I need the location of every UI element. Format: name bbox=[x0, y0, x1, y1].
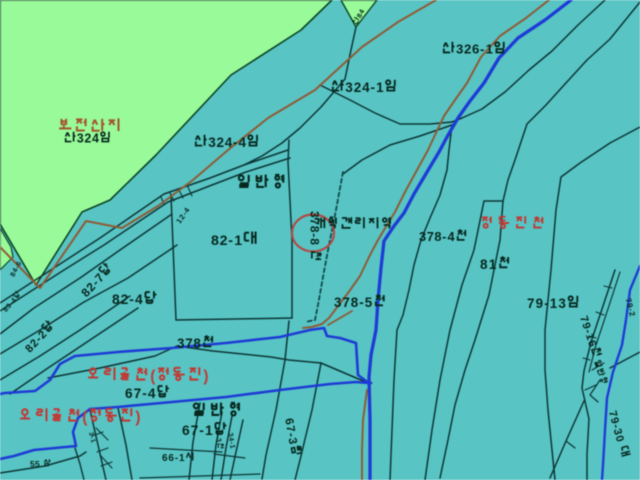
svg-text:1: 1 bbox=[179, 453, 185, 464]
svg-text:8: 8 bbox=[351, 295, 359, 310]
svg-text:-: - bbox=[544, 296, 548, 311]
svg-text:-: - bbox=[480, 42, 484, 57]
svg-text:1: 1 bbox=[205, 423, 213, 438]
svg-text:8: 8 bbox=[112, 292, 120, 307]
svg-text:1: 1 bbox=[550, 296, 558, 311]
svg-text:6: 6 bbox=[168, 453, 174, 464]
svg-text:6: 6 bbox=[472, 42, 479, 57]
svg-text:1: 1 bbox=[489, 257, 497, 272]
svg-text:-: - bbox=[228, 233, 233, 249]
svg-text:2: 2 bbox=[217, 135, 225, 150]
svg-text:(: ( bbox=[150, 368, 156, 385]
svg-text:3: 3 bbox=[308, 211, 322, 218]
svg-text:8: 8 bbox=[434, 229, 441, 244]
svg-text:4: 4 bbox=[448, 229, 456, 244]
svg-text:-: - bbox=[233, 135, 238, 150]
svg-text:1: 1 bbox=[376, 80, 384, 95]
svg-text:-: - bbox=[199, 423, 204, 438]
svg-text:7: 7 bbox=[527, 296, 534, 311]
svg-text:3: 3 bbox=[77, 132, 84, 146]
svg-text:2: 2 bbox=[464, 42, 471, 57]
svg-text:9: 9 bbox=[536, 296, 543, 311]
svg-text:8: 8 bbox=[480, 257, 488, 272]
svg-text:7: 7 bbox=[134, 386, 142, 401]
svg-text:4: 4 bbox=[135, 292, 143, 307]
svg-text:4: 4 bbox=[148, 386, 156, 401]
svg-text:-: - bbox=[129, 292, 134, 307]
svg-text:7: 7 bbox=[427, 229, 434, 244]
svg-text:2: 2 bbox=[121, 292, 129, 307]
svg-text:1: 1 bbox=[486, 42, 493, 57]
svg-text:(: ( bbox=[82, 409, 88, 426]
svg-text:7: 7 bbox=[308, 218, 322, 225]
svg-text:4: 4 bbox=[92, 132, 99, 146]
svg-text:5: 5 bbox=[35, 459, 40, 469]
svg-text:-: - bbox=[308, 233, 322, 237]
svg-text:5: 5 bbox=[365, 295, 373, 310]
svg-text:4: 4 bbox=[239, 135, 247, 150]
svg-text:4: 4 bbox=[362, 80, 370, 95]
svg-text:3: 3 bbox=[456, 42, 463, 57]
svg-text:7: 7 bbox=[191, 423, 199, 438]
svg-text:3: 3 bbox=[345, 80, 353, 95]
svg-text:6: 6 bbox=[182, 423, 190, 438]
svg-text:): ) bbox=[203, 368, 208, 385]
svg-text:8: 8 bbox=[193, 336, 201, 351]
svg-text:4: 4 bbox=[225, 135, 233, 150]
svg-text:3: 3 bbox=[208, 135, 216, 150]
svg-text:7: 7 bbox=[185, 336, 192, 351]
svg-text:6: 6 bbox=[162, 453, 168, 464]
svg-text:1: 1 bbox=[234, 233, 242, 249]
svg-text:8: 8 bbox=[308, 226, 322, 233]
svg-text:-: - bbox=[142, 386, 147, 401]
svg-text:2: 2 bbox=[84, 132, 91, 146]
svg-text:-: - bbox=[442, 229, 446, 244]
svg-text:-: - bbox=[359, 295, 363, 310]
svg-text:3: 3 bbox=[419, 229, 426, 244]
svg-text:3: 3 bbox=[177, 336, 184, 351]
svg-text:-: - bbox=[175, 453, 178, 464]
svg-text:2: 2 bbox=[220, 233, 228, 249]
svg-text:3: 3 bbox=[558, 296, 565, 311]
svg-text:8: 8 bbox=[308, 238, 322, 245]
svg-text:2: 2 bbox=[354, 80, 362, 95]
svg-text:6: 6 bbox=[125, 386, 133, 401]
svg-text:): ) bbox=[135, 409, 140, 426]
svg-text:8: 8 bbox=[211, 233, 219, 249]
svg-text:-: - bbox=[371, 80, 376, 95]
svg-text:7: 7 bbox=[342, 295, 349, 310]
svg-text:3: 3 bbox=[334, 295, 341, 310]
